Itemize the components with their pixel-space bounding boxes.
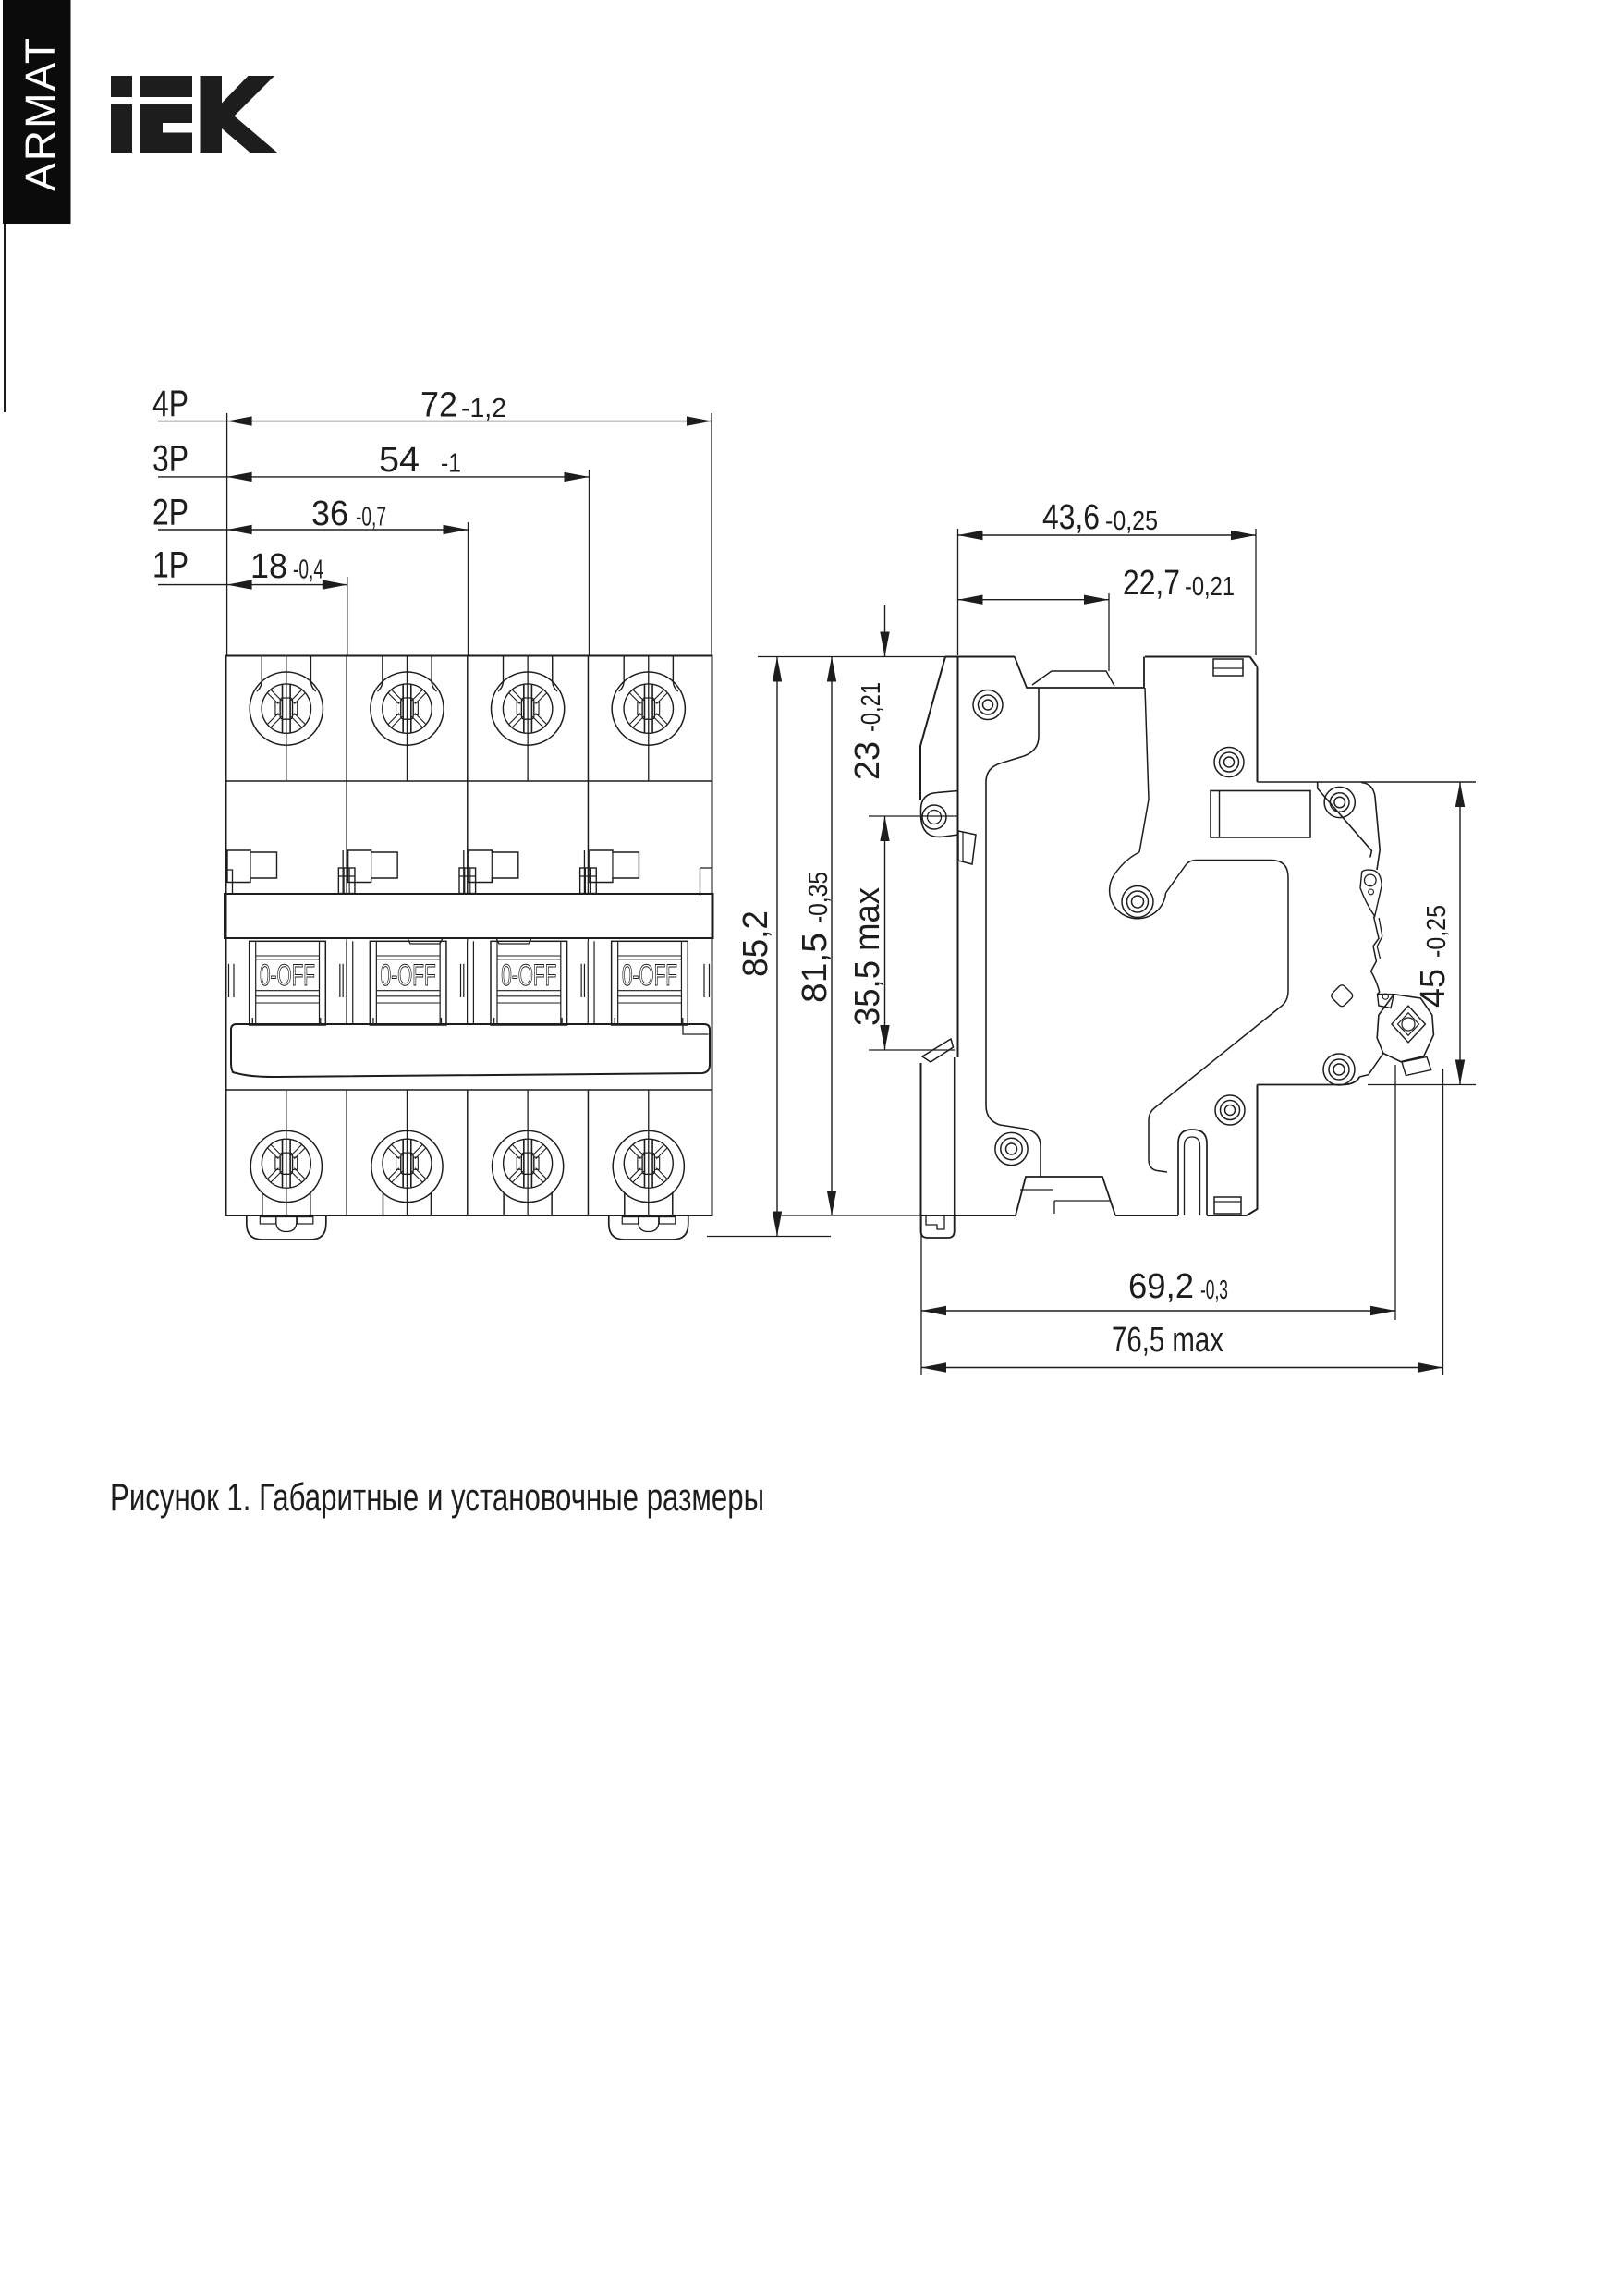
- svg-text:-0,25: -0,25: [1422, 905, 1452, 958]
- svg-text:-0,4: -0,4: [293, 556, 323, 585]
- svg-text:23: 23: [848, 741, 887, 780]
- svg-text:ARMAT: ARMAT: [17, 36, 64, 191]
- svg-text:0-OFF: 0-OFF: [501, 959, 556, 992]
- svg-text:2P: 2P: [152, 493, 189, 533]
- svg-text:54: 54: [379, 441, 420, 480]
- svg-text:36: 36: [311, 495, 348, 533]
- svg-text:-0,25: -0,25: [1105, 507, 1158, 536]
- svg-text:45: 45: [1414, 969, 1453, 1008]
- svg-text:-0,35: -0,35: [804, 872, 834, 923]
- svg-text:1P: 1P: [152, 545, 189, 586]
- svg-text:-0,21: -0,21: [1185, 572, 1235, 602]
- svg-text:0-OFF: 0-OFF: [381, 959, 436, 992]
- svg-text:4P: 4P: [152, 384, 189, 424]
- svg-text:Рисунок 1. Габаритные и устано: Рисунок 1. Габаритные и установочные раз…: [110, 1475, 764, 1519]
- svg-text:0-OFF: 0-OFF: [622, 959, 677, 992]
- svg-text:22,7: 22,7: [1123, 564, 1180, 603]
- svg-text:3P: 3P: [152, 439, 189, 480]
- svg-text:81,5: 81,5: [796, 933, 834, 1003]
- svg-text:-0,3: -0,3: [1200, 1276, 1228, 1305]
- svg-text:76,5 max: 76,5 max: [1112, 1321, 1223, 1360]
- svg-text:0-OFF: 0-OFF: [260, 959, 315, 992]
- svg-text:69,2: 69,2: [1128, 1267, 1194, 1306]
- svg-text:72: 72: [420, 386, 457, 425]
- svg-text:43,6: 43,6: [1042, 498, 1100, 537]
- svg-text:-0,21: -0,21: [857, 682, 886, 732]
- svg-text:-1: -1: [441, 449, 461, 479]
- svg-text:-0,7: -0,7: [356, 503, 386, 532]
- svg-text:-1,2: -1,2: [461, 394, 506, 423]
- svg-text:85,2: 85,2: [736, 910, 775, 977]
- svg-text:35,5 max: 35,5 max: [848, 887, 887, 1026]
- svg-text:18: 18: [250, 547, 287, 586]
